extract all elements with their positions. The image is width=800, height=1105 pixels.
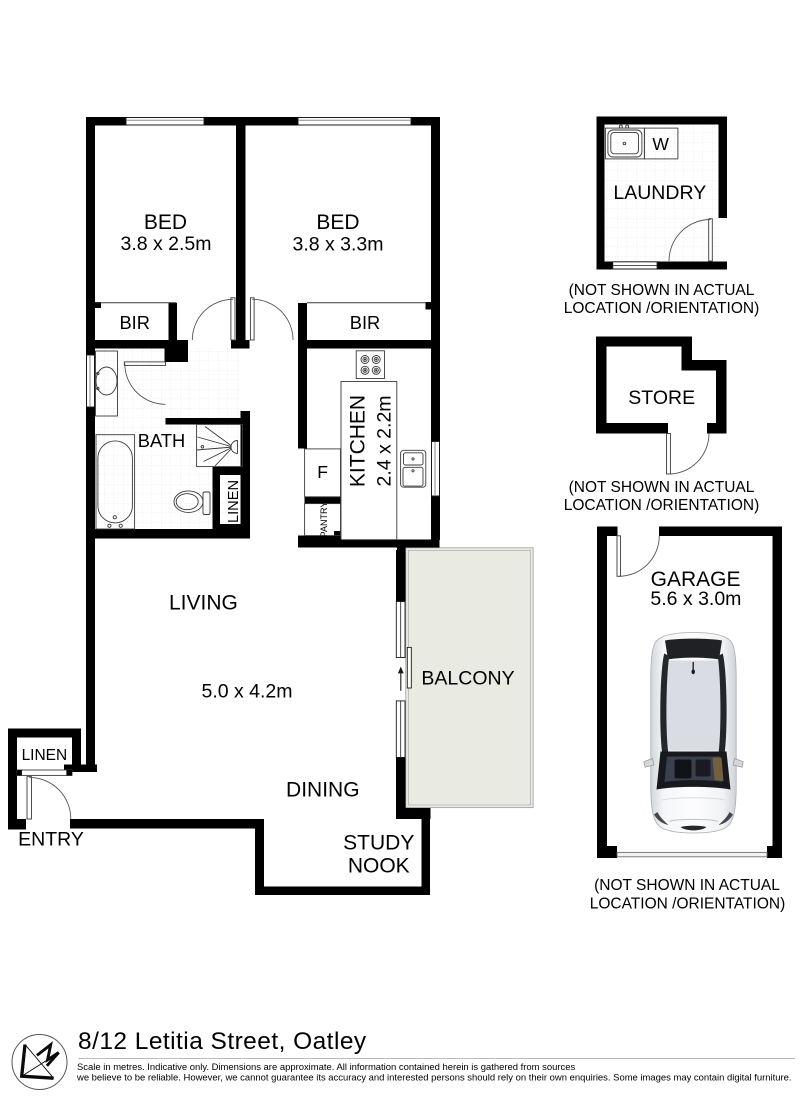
svg-text:DINING: DINING [286,779,360,802]
svg-text:LAUNDRY: LAUNDRY [613,182,706,204]
svg-text:LINEN: LINEN [22,747,68,764]
svg-text:BED: BED [316,211,359,234]
svg-text:5.6 x 3.0m: 5.6 x 3.0m [650,588,741,610]
svg-text:8/12 Letitia Street, Oatley: 8/12 Letitia Street, Oatley [78,1028,367,1055]
svg-text:LOCATION /ORIENTATION): LOCATION /ORIENTATION) [590,896,785,913]
svg-text:(NOT SHOWN IN ACTUAL: (NOT SHOWN IN ACTUAL [569,282,755,299]
svg-text:KITCHEN: KITCHEN [347,395,370,487]
svg-text:W: W [652,134,669,154]
svg-text:5.0 x 4.2m: 5.0 x 4.2m [201,681,292,703]
svg-text:NOOK: NOOK [348,855,410,878]
svg-text:BED: BED [144,211,187,234]
svg-text:LIVING: LIVING [169,592,238,615]
svg-text:BIR: BIR [119,312,149,333]
svg-text:LINEN: LINEN [226,480,242,523]
svg-text:F: F [317,462,328,482]
svg-text:we believe to be reliable. How: we believe to be reliable. However, we c… [76,1073,792,1084]
svg-text:3.8 x 2.5m: 3.8 x 2.5m [120,233,211,255]
svg-text:BALCONY: BALCONY [421,668,514,690]
svg-text:LOCATION /ORIENTATION): LOCATION /ORIENTATION) [564,497,759,514]
svg-text:BIR: BIR [350,312,380,333]
svg-text:3.8 x 3.3m: 3.8 x 3.3m [292,234,383,256]
svg-text:ENTRY: ENTRY [18,829,84,851]
svg-text:PANTRY: PANTRY [319,502,329,538]
svg-text:Scale in metres. Indicative on: Scale in metres. Indicative only. Dimens… [77,1062,575,1073]
svg-text:BATH: BATH [138,430,185,451]
svg-text:(NOT SHOWN IN ACTUAL: (NOT SHOWN IN ACTUAL [594,877,780,894]
svg-text:2.4 x 2.2m: 2.4 x 2.2m [374,395,396,486]
svg-text:(NOT SHOWN IN ACTUAL: (NOT SHOWN IN ACTUAL [569,479,755,496]
svg-text:STUDY: STUDY [343,832,414,855]
svg-text:LOCATION /ORIENTATION): LOCATION /ORIENTATION) [564,300,759,317]
svg-text:STORE: STORE [628,387,695,409]
